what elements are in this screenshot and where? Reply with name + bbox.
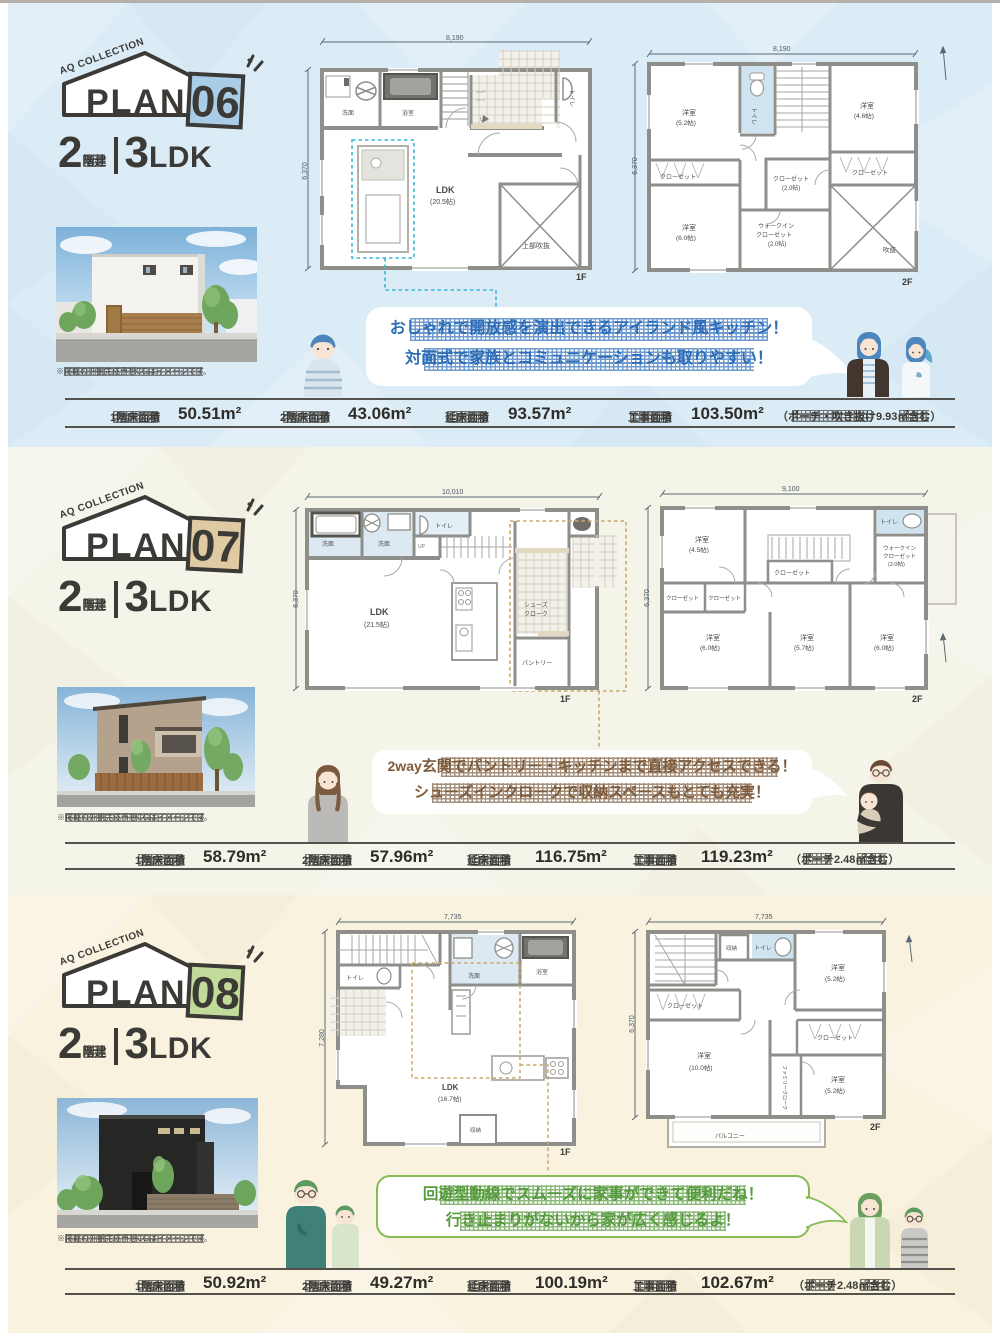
svg-text:洋室: 洋室 xyxy=(697,1051,711,1060)
svg-text:2F: 2F xyxy=(902,277,913,287)
svg-text:1F: 1F xyxy=(560,1147,571,1157)
svg-text:LDK: LDK xyxy=(436,185,455,195)
svg-text:バルコニー: バルコニー xyxy=(715,1133,745,1140)
svg-text:収納: 収納 xyxy=(726,944,738,952)
svg-text:トイレ: トイレ xyxy=(435,524,453,530)
svg-text:洗面: 洗面 xyxy=(342,109,354,117)
svg-text:PLAN: PLAN xyxy=(86,974,187,1012)
svg-text:(6.0帖): (6.0帖) xyxy=(700,643,720,652)
svg-text:トイレ: トイレ xyxy=(750,107,756,125)
svg-text:クローゼット: クローゼット xyxy=(660,173,696,181)
svg-text:洋室: 洋室 xyxy=(695,535,709,544)
svg-text:ウォークイン: ウォークイン xyxy=(883,544,917,552)
svg-text:クローゼット: クローゼット xyxy=(774,569,810,577)
svg-text:(2.0帖): (2.0帖) xyxy=(782,184,800,192)
svg-text:06: 06 xyxy=(190,77,241,128)
svg-text:08: 08 xyxy=(190,968,241,1019)
svg-text:(21.5帖): (21.5帖) xyxy=(364,620,389,629)
svg-text:クローク: クローク xyxy=(524,611,548,618)
svg-text:LDK: LDK xyxy=(442,1083,459,1092)
svg-text:洋室: 洋室 xyxy=(880,633,894,642)
svg-text:クローゼット: クローゼット xyxy=(666,594,699,602)
svg-text:(5.2帖): (5.2帖) xyxy=(825,974,845,983)
svg-text:8,190: 8,190 xyxy=(773,46,791,53)
svg-text:7,735: 7,735 xyxy=(755,914,773,921)
svg-text:1F: 1F xyxy=(576,272,587,282)
svg-text:洗面: 洗面 xyxy=(468,972,480,980)
svg-text:トイレ: トイレ xyxy=(754,946,772,952)
svg-text:PLAN: PLAN xyxy=(86,83,187,121)
svg-text:洗面: 洗面 xyxy=(378,540,390,548)
svg-text:8,190: 8,190 xyxy=(446,35,464,42)
svg-text:07: 07 xyxy=(190,521,241,572)
svg-text:クローゼット: クローゼット xyxy=(883,552,916,560)
svg-text:UP: UP xyxy=(418,544,426,550)
svg-text:収納: 収納 xyxy=(470,1126,482,1134)
svg-text:洋室: 洋室 xyxy=(860,101,874,110)
svg-text:クローゼット: クローゼット xyxy=(773,175,809,183)
svg-text:吹抜: 吹抜 xyxy=(883,245,897,254)
svg-text:トイレ: トイレ xyxy=(568,89,574,107)
svg-text:パントリー: パントリー xyxy=(522,660,552,667)
svg-text:7,735: 7,735 xyxy=(444,914,462,921)
svg-text:1F: 1F xyxy=(560,694,571,704)
svg-text:(20.5帖): (20.5帖) xyxy=(430,197,455,206)
svg-text:6,370: 6,370 xyxy=(293,590,300,608)
svg-text:6,370: 6,370 xyxy=(644,589,651,607)
svg-text:洗面: 洗面 xyxy=(322,540,334,548)
svg-text:浴室: 浴室 xyxy=(402,109,414,117)
svg-text:浴室: 浴室 xyxy=(536,968,548,976)
svg-text:クローゼット: クローゼット xyxy=(756,231,792,239)
svg-text:LDK: LDK xyxy=(370,607,389,617)
svg-text:上部吹抜: 上部吹抜 xyxy=(522,241,550,250)
svg-text:(6.0帖): (6.0帖) xyxy=(676,233,696,242)
svg-text:シューズ: シューズ xyxy=(524,601,548,609)
svg-text:ファミリークローク: ファミリークローク xyxy=(781,1065,787,1110)
svg-text:1coR: 1coR xyxy=(476,89,485,94)
svg-text:ウォークイン: ウォークイン xyxy=(758,222,794,230)
svg-text:9,100: 9,100 xyxy=(782,486,800,493)
svg-text:PLAN: PLAN xyxy=(86,527,187,565)
svg-text:洋室: 洋室 xyxy=(831,963,845,972)
svg-text:クローゼット: クローゼット xyxy=(708,594,741,602)
svg-text:2F: 2F xyxy=(870,1122,881,1132)
svg-text:洋室: 洋室 xyxy=(682,108,696,117)
svg-text:2F: 2F xyxy=(912,694,923,704)
svg-text:SD-0: SD-0 xyxy=(476,97,486,102)
svg-text:UP: UP xyxy=(480,117,488,123)
svg-text:洋室: 洋室 xyxy=(682,223,696,232)
svg-text:(5.2帖): (5.2帖) xyxy=(676,118,696,127)
svg-text:(16.7帖): (16.7帖) xyxy=(438,1094,461,1103)
svg-text:10,010: 10,010 xyxy=(442,489,464,496)
svg-text:6,370: 6,370 xyxy=(632,157,639,175)
svg-text:(5.2帖): (5.2帖) xyxy=(825,1086,845,1095)
svg-text:洋室: 洋室 xyxy=(800,633,814,642)
svg-text:洋室: 洋室 xyxy=(831,1075,845,1084)
svg-text:クローゼット: クローゼット xyxy=(667,1002,703,1010)
svg-text:6,370: 6,370 xyxy=(302,162,309,180)
svg-text:洋室: 洋室 xyxy=(706,633,720,642)
svg-text:トイレ: トイレ xyxy=(346,976,364,982)
svg-text:(4.5帖): (4.5帖) xyxy=(689,545,709,554)
svg-text:(6.0帖): (6.0帖) xyxy=(874,643,894,652)
svg-text:(2.0帖): (2.0帖) xyxy=(768,240,786,248)
svg-text:6,370: 6,370 xyxy=(629,1015,636,1033)
svg-text:(2.0帖): (2.0帖) xyxy=(888,560,905,568)
svg-text:トイレ: トイレ xyxy=(880,520,898,526)
svg-text:7,280: 7,280 xyxy=(319,1029,326,1047)
svg-text:(10.0帖): (10.0帖) xyxy=(689,1063,712,1072)
svg-text:クローゼット: クローゼット xyxy=(852,169,888,177)
svg-text:(4.6帖): (4.6帖) xyxy=(854,111,874,120)
svg-text:(5.7帖): (5.7帖) xyxy=(794,643,814,652)
